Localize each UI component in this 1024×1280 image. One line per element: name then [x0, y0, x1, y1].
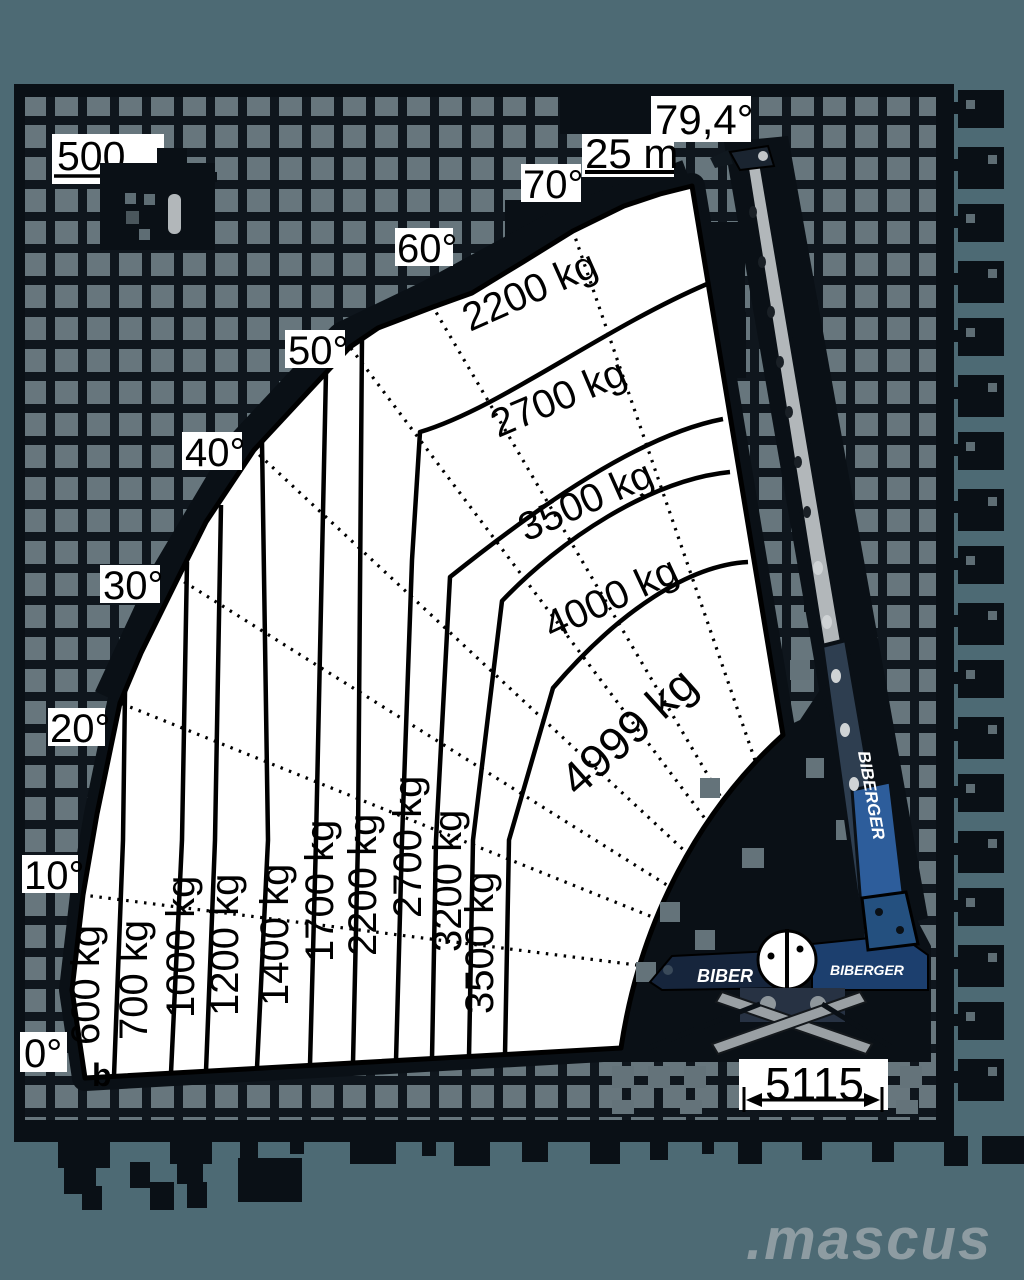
svg-text:1000 kg: 1000 kg [159, 876, 203, 1018]
svg-text:1700 kg: 1700 kg [298, 820, 342, 962]
svg-text:60°: 60° [397, 227, 458, 271]
svg-text:10°: 10° [24, 854, 85, 898]
svg-text:5115: 5115 [765, 1058, 864, 1110]
svg-text:0°: 0° [24, 1032, 62, 1076]
svg-text:70°: 70° [523, 163, 584, 207]
svg-text:25 m: 25 m [585, 130, 678, 177]
svg-text:700 kg: 700 kg [112, 920, 156, 1040]
svg-text:30°: 30° [103, 564, 164, 608]
svg-text:50°: 50° [288, 329, 349, 373]
svg-text:BIBERGER: BIBERGER [830, 962, 905, 978]
svg-text:3500 kg: 3500 kg [458, 872, 502, 1014]
svg-text:2700 kg: 2700 kg [386, 776, 430, 918]
svg-text:b: b [92, 1057, 112, 1093]
svg-text:1400 kg: 1400 kg [253, 864, 297, 1006]
svg-text:2200 kg: 2200 kg [341, 814, 385, 956]
svg-text:600 kg: 600 kg [64, 925, 108, 1045]
svg-text:.mascus: .mascus [746, 1207, 992, 1272]
svg-text:20°: 20° [50, 707, 111, 751]
svg-text:BIBER: BIBER [697, 966, 753, 986]
svg-text:1200 kg: 1200 kg [203, 874, 247, 1016]
svg-text:40°: 40° [185, 431, 246, 475]
